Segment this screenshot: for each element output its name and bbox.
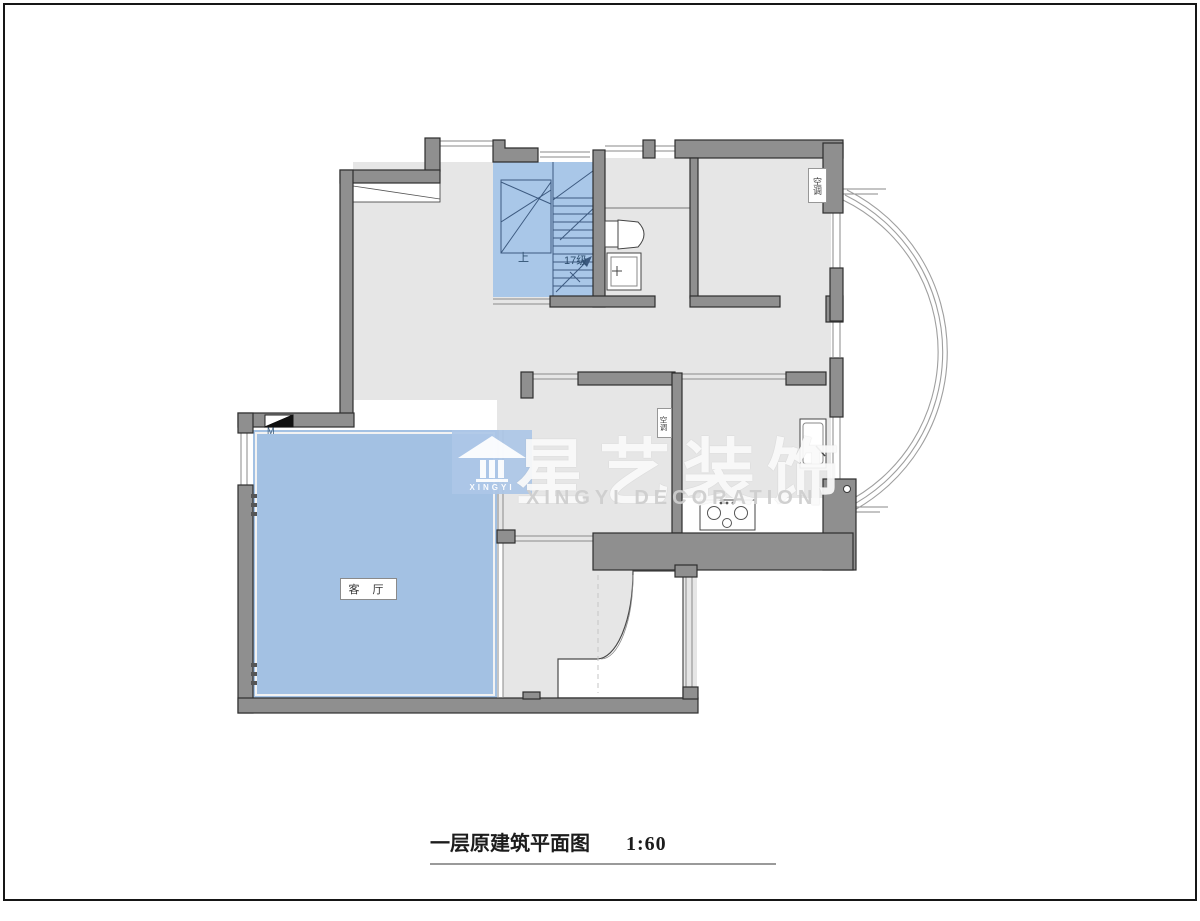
caption-title: 一层原建筑平面图 bbox=[430, 827, 590, 856]
living-room-label: 客 厅 bbox=[340, 578, 397, 600]
stairs-count-label: 17级 bbox=[564, 252, 587, 268]
stairs-up-label: 上 bbox=[518, 249, 529, 265]
floor-plan-page: XINGYI 星艺装饰 XINGYI DECORATION 客 厅 上 17级 … bbox=[0, 0, 1200, 921]
door-marker-label: M bbox=[267, 426, 275, 436]
watermark-brand-sub: XINGYI DECORATION bbox=[526, 487, 926, 510]
drawing-caption: 一层原建筑平面图 1:60 bbox=[430, 827, 776, 865]
toilet-icon bbox=[605, 220, 644, 249]
shower-tray-icon bbox=[607, 253, 641, 290]
ac-label-top-room: 空调 bbox=[808, 168, 827, 203]
ac-label-middle-room: 空调 bbox=[657, 408, 672, 438]
caption-scale: 1:60 bbox=[626, 833, 667, 856]
